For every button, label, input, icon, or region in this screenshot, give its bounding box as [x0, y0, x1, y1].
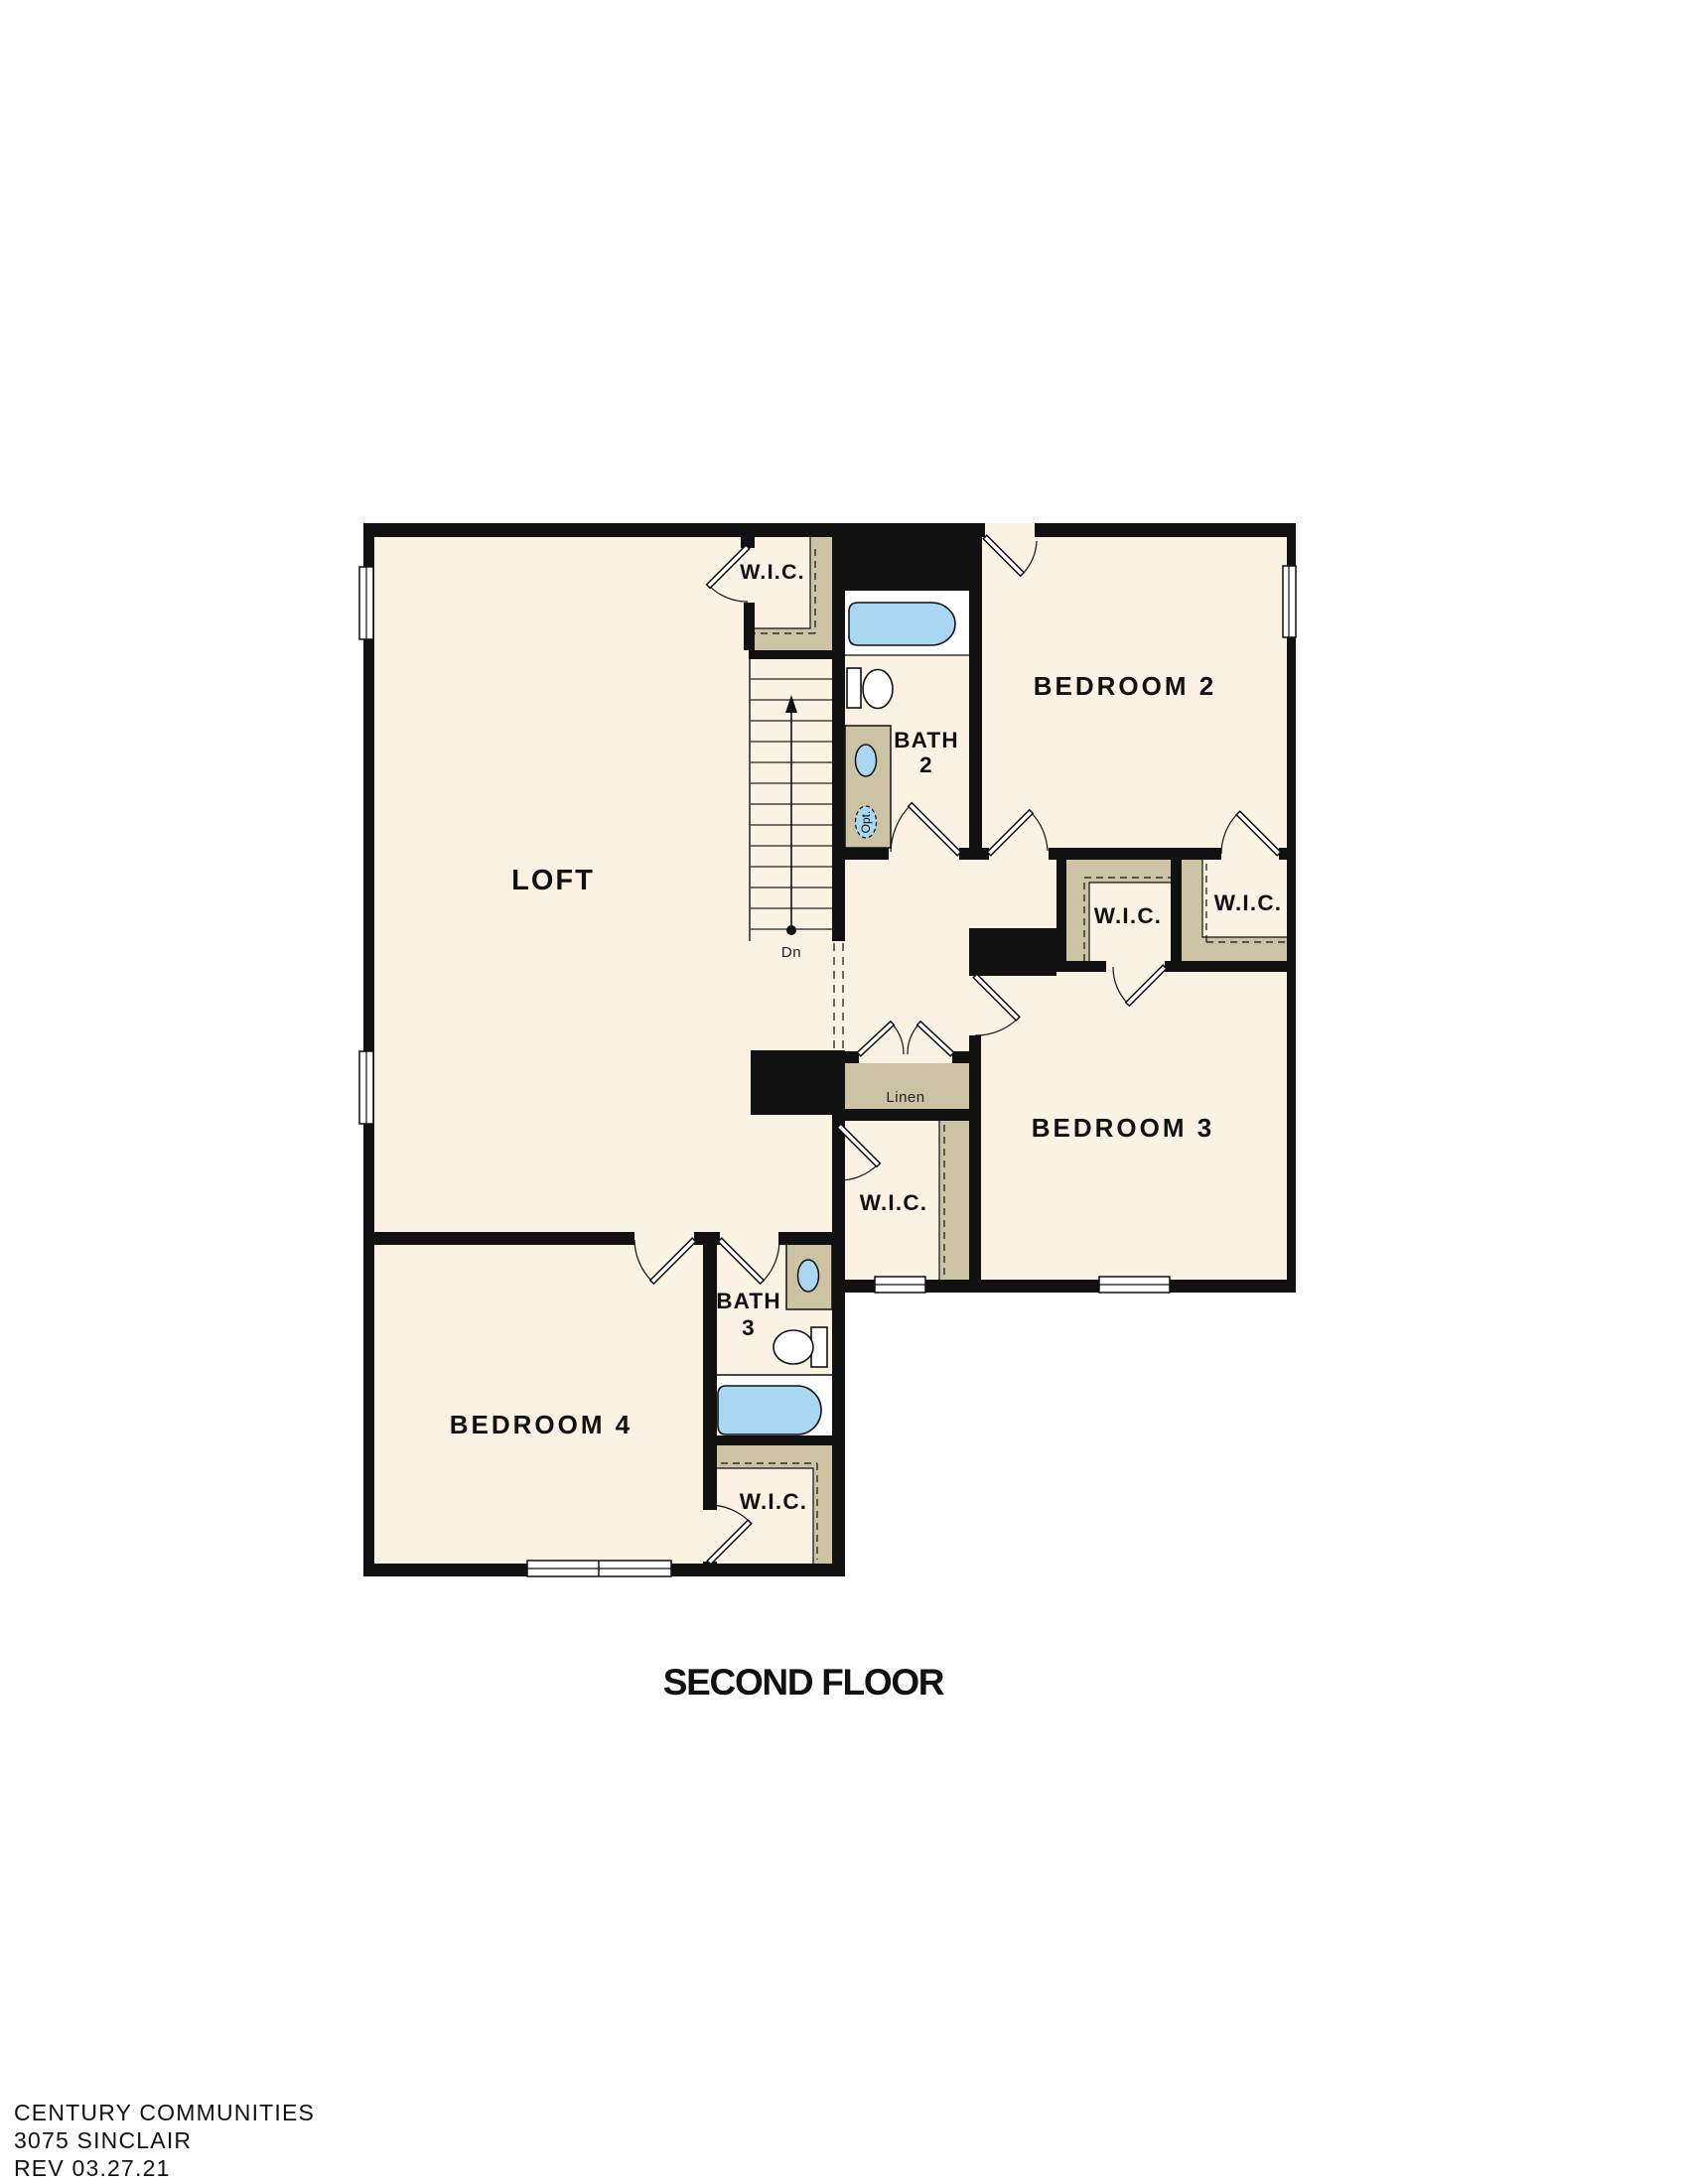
svg-text:2: 2	[919, 752, 933, 777]
svg-text:LOFT: LOFT	[511, 865, 595, 896]
svg-text:BEDROOM 2: BEDROOM 2	[1034, 671, 1216, 701]
svg-text:Linen: Linen	[886, 1089, 924, 1106]
svg-text:3075 SINCLAIR: 3075 SINCLAIR	[14, 2127, 192, 2153]
svg-text:W.I.C.: W.I.C.	[740, 1489, 807, 1514]
svg-text:3: 3	[742, 1315, 756, 1340]
svg-text:BEDROOM 4: BEDROOM 4	[450, 1410, 633, 1439]
svg-text:W.I.C.: W.I.C.	[1094, 903, 1162, 928]
svg-text:REV 03.27.21: REV 03.27.21	[14, 2155, 171, 2181]
svg-text:Dn: Dn	[781, 944, 801, 961]
svg-text:W.I.C.: W.I.C.	[1214, 890, 1282, 915]
svg-text:W.I.C.: W.I.C.	[740, 560, 805, 584]
svg-text:Opt.: Opt.	[859, 811, 873, 834]
svg-text:CENTURY COMMUNITIES: CENTURY COMMUNITIES	[14, 2100, 315, 2125]
svg-text:BEDROOM 3: BEDROOM 3	[1032, 1113, 1214, 1143]
svg-text:SECOND FLOOR: SECOND FLOOR	[663, 1662, 944, 1703]
svg-text:BATH: BATH	[894, 728, 959, 752]
svg-text:BATH: BATH	[716, 1289, 781, 1313]
svg-text:W.I.C.: W.I.C.	[860, 1190, 927, 1215]
